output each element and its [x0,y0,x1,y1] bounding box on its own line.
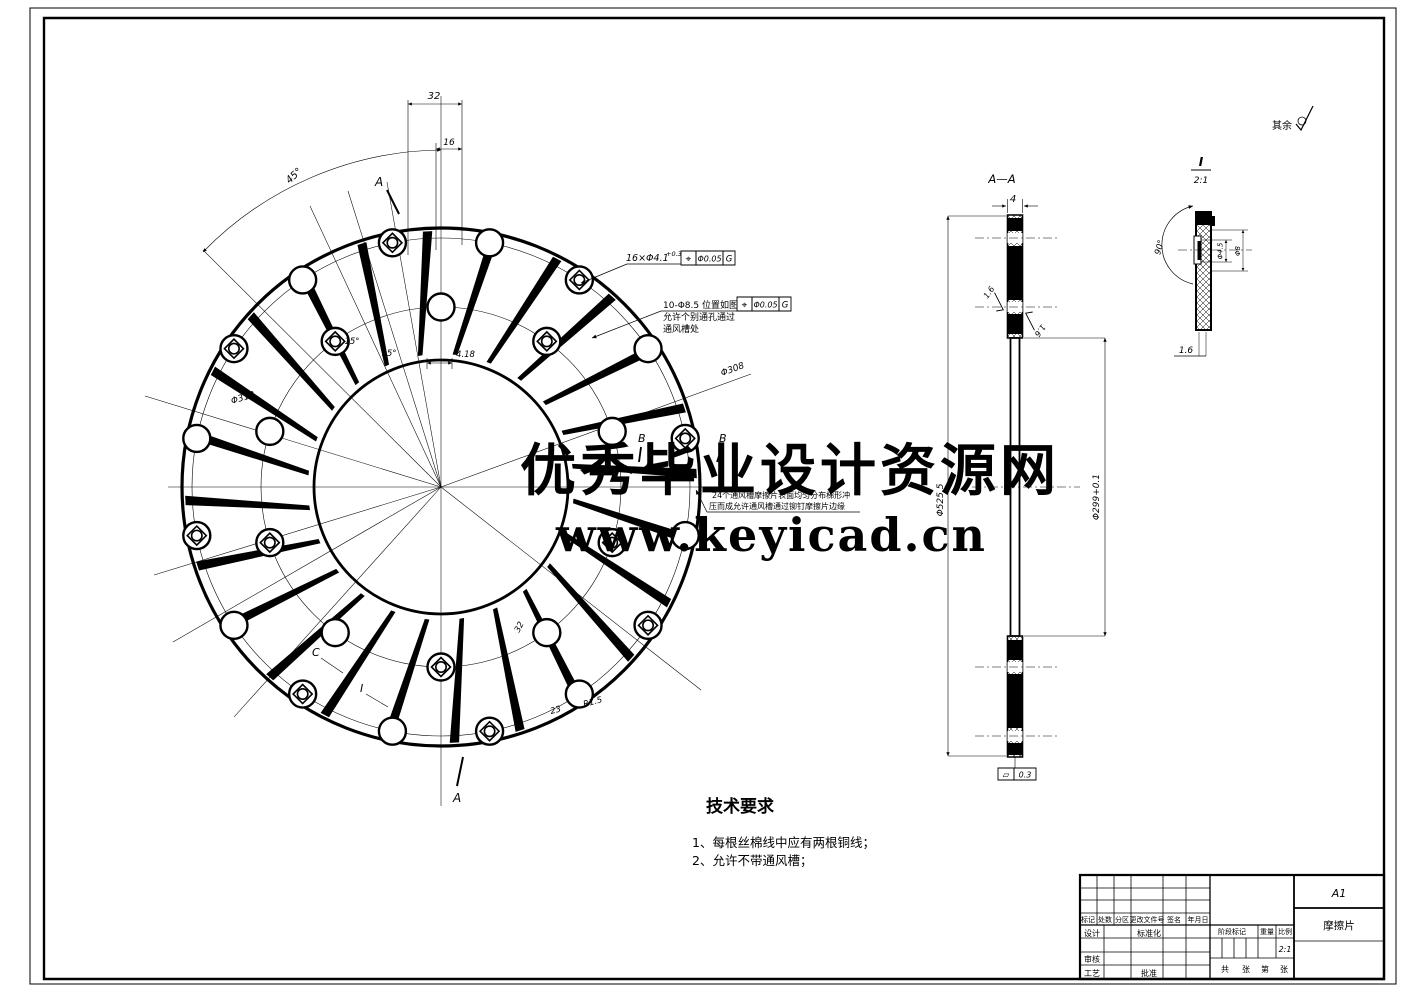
holes10-line3: 通风槽处 [663,323,699,335]
tb-page-w: 张 [1280,965,1288,974]
holes10-line1: 10-Φ8.5 位置如图 [663,299,738,311]
tb-check: 审核 [1084,954,1100,964]
through-hole [533,619,560,646]
flatness-value: 0.3 [1019,771,1032,780]
vent-slot [357,242,389,366]
part-name: 摩擦片 [1323,919,1355,932]
through-hole [289,266,316,293]
section-dim-inner: Φ299+0.1 [1092,474,1102,520]
rivet-hole [635,612,662,639]
roughness-icon [1296,106,1313,130]
roughness-icon: 1.6 [979,285,1010,314]
through-hole [183,425,210,452]
detail-dim-b: Φ8 [1234,245,1242,256]
tb-process: 工艺 [1084,969,1100,978]
vent-slot [248,312,335,410]
dim-32: 32 [428,91,441,102]
holes10-gdt-val: Φ0.05 [753,301,777,310]
through-hole [379,718,406,745]
tb-weight: 重量 [1260,928,1274,936]
dim-45deg: 45° [284,166,304,186]
annotation-holes16: 16×Φ4.1 +0.3 ⌖ Φ0.05 G [581,250,735,283]
cad-drawing: 32 16 45° 15° 15° 4.18 Φ308 Φ318 32 23 R… [0,0,1403,992]
holes16-gdt-ref: G [726,255,733,265]
rivet-hole [476,718,503,745]
through-hole [476,229,503,256]
surface-note-label: 其余 [1272,119,1292,132]
section-title: A—A [987,172,1015,186]
view-label-c: C [312,646,320,659]
detail-title: I [1199,155,1204,169]
th-zone: 分区 [1115,915,1129,924]
holes16-gdt-val: Φ0.05 [697,255,721,264]
roughness-icon: 1.6 [1019,309,1050,338]
cad-sheet: 32 16 45° 15° 15° 4.18 Φ308 Φ318 32 23 R… [0,0,1403,992]
rivet-hole [220,335,247,362]
detail-label-i: I [360,682,363,695]
holes10-gdt-ref: G [782,301,789,311]
flatness-icon: ▱ [1003,771,1010,781]
detail-view: I 2:1 90° Φ4.5 Φ8 1.6 [1153,155,1252,356]
detail-scale: 2:1 [1194,176,1208,186]
through-hole [256,418,283,445]
tb-stage: 阶段标记 [1218,927,1246,936]
section-label-a-top: A [374,175,383,189]
watermark-line1: 优秀毕业设计资源网 [520,438,1060,504]
sheet-size: A1 [1331,887,1347,900]
tech-item-1: 1、每根丝棉线中应有两根铜线； [692,835,875,850]
dim-d318: Φ318 [230,390,256,407]
gdt-position-icon: ⌖ [742,300,748,311]
tb-standard: 标准化 [1137,928,1161,938]
through-hole [428,294,455,321]
title-block: A1 摩擦片 标记 处数 分区 更改文件号 签名 年月日 设计 标准化 审核 工… [1080,875,1384,979]
watermark: 优秀毕业设计资源网 www.keyicad.cn [520,438,1060,562]
svg-text:1.6: 1.6 [1033,323,1048,339]
section-dim-4: 4 [1010,194,1016,205]
rivet-hole [533,328,560,355]
tb-ratio: 比例 [1278,927,1292,936]
tech-requirements: 技术要求 1、每根丝棉线中应有两根铜线； 2、允许不带通风槽； [692,796,875,868]
dim-16: 16 [443,138,455,148]
detail-angle: 90° [1153,239,1167,256]
rivet-hole [428,654,455,681]
section-label-a-bottom: A [452,791,461,805]
dim-slot-23: 23 [549,704,562,716]
dim-d308: Φ308 [720,361,746,379]
rivet-hole [256,529,283,556]
tb-sheet-w: 张 [1242,965,1250,974]
dim-15deg-b: 15° [344,337,359,347]
th-doc: 更改文件号 [1130,915,1165,924]
th-mark: 标记 [1081,915,1095,924]
gdt-position-icon: ⌖ [686,254,692,265]
dim-slot-32: 32 [513,620,527,634]
through-hole [220,612,247,639]
vent-slot [185,496,310,510]
watermark-line2: www.keyicad.cn [555,508,987,562]
dim-15deg-a: 15° [381,349,396,359]
detail-dim-t: 1.6 [1179,346,1194,356]
vent-slot [418,231,432,356]
dim-418: 4.18 [456,350,476,360]
vent-slot [450,618,464,743]
tb-scale: 2:1 [1279,945,1292,954]
vent-slot [547,563,634,661]
tb-page: 第 [1261,964,1269,974]
through-hole [635,335,662,362]
holes16-text: 16×Φ4.1 [626,253,669,264]
flatness-tolerance: ▱ 0.3 [998,757,1036,781]
detail-dim-a: Φ4.5 [1217,242,1225,259]
rivet-hole [289,681,316,708]
tb-approve: 批准 [1141,968,1157,978]
through-hole [322,619,349,646]
th-sign: 签名 [1167,915,1181,924]
holes16-sup: +0.3 [666,250,682,258]
tech-title: 技术要求 [706,796,774,817]
vent-slot [517,294,615,381]
tb-design: 设计 [1084,928,1100,938]
surface-note: 其余 [1272,106,1313,132]
svg-text:1.6: 1.6 [982,285,997,301]
tech-item-2: 2、允许不带通风槽； [692,853,812,868]
rivet-hole [183,522,210,549]
th-count: 处数 [1098,915,1112,924]
rivet-hole [379,229,406,256]
th-date: 年月日 [1188,915,1209,924]
vent-slot [266,593,364,680]
holes10-line2: 允许个别通孔通过 [663,311,735,323]
tb-total: 共 [1221,965,1229,974]
